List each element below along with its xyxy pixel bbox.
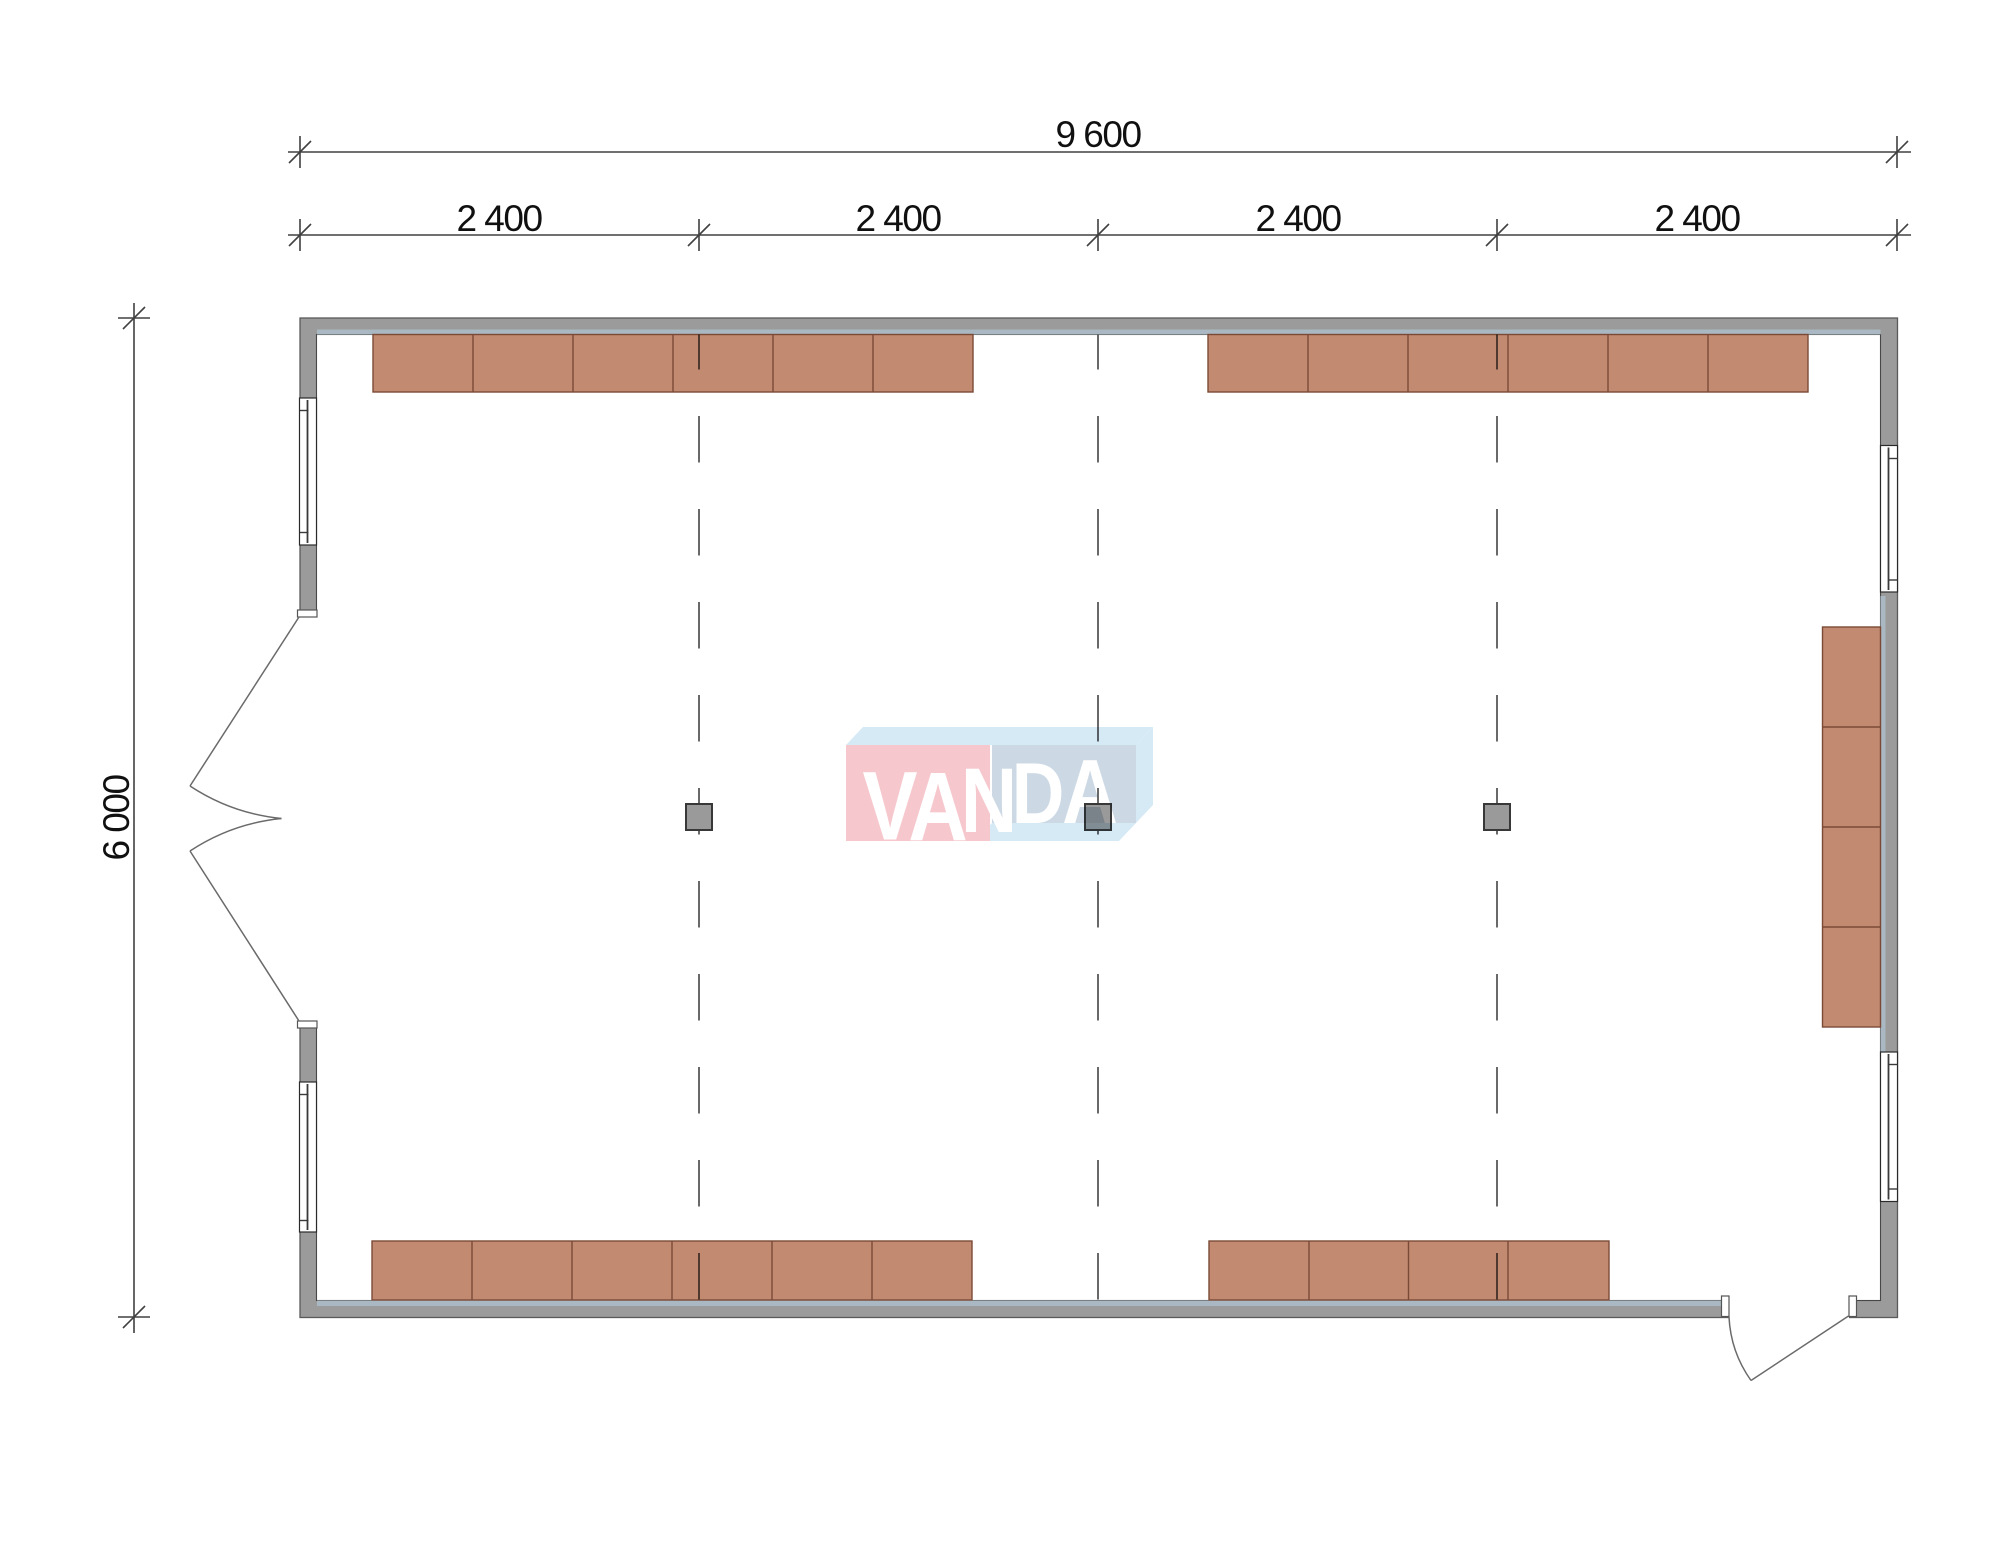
- svg-text:N: N: [961, 750, 1017, 852]
- svg-text:D: D: [1012, 745, 1065, 841]
- svg-text:A: A: [1062, 741, 1118, 842]
- svg-text:A: A: [908, 754, 968, 862]
